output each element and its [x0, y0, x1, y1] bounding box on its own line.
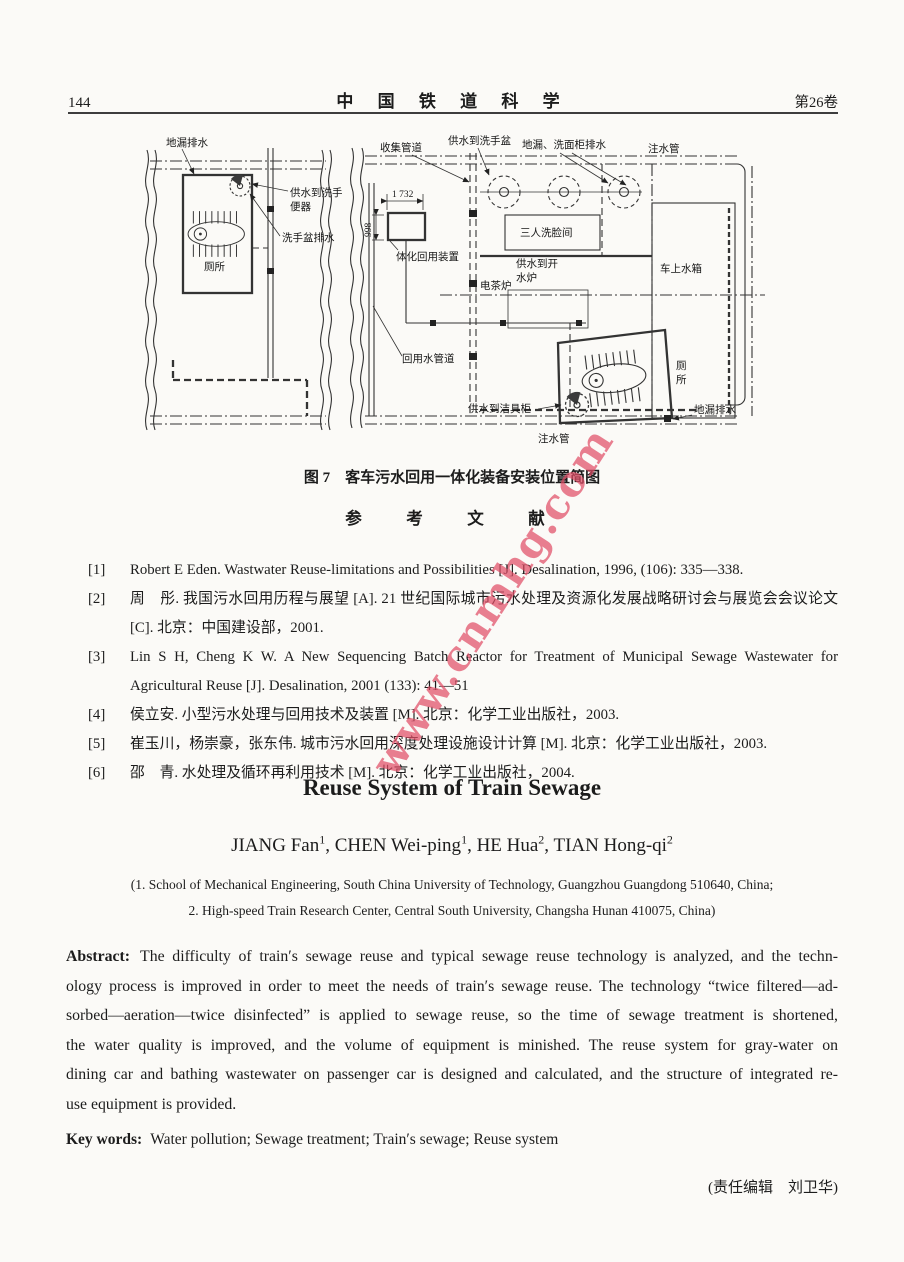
reference-item: [1] Robert E Eden. Wastwater Reuse-limit… [68, 556, 838, 585]
right-labels: 收集管道 供水到洗手盆 地漏、洗面柜排水 注水管 供水到开 水炉 电茶炉 回用水… [373, 134, 736, 445]
label-reuse-pipe: 回用水管道 [402, 352, 455, 365]
reference-text: 侯立安. 小型污水处理与回用技术及装置 [M]. 北京：化学工业出版社，2003… [130, 707, 619, 723]
reference-number: [3] [88, 643, 105, 672]
label-left-supply-2: 便器 [290, 200, 311, 213]
abstract-line: Abstract:The difficulty of train′s sewag… [66, 942, 838, 972]
pipes-right [369, 153, 700, 416]
label-right-floor-drain: 地漏排水 [694, 403, 736, 416]
scanned-paper-page: 144 中 国 铁 道 科 学 第26卷 [0, 0, 904, 1262]
keywords-line: Key words:Water pollution; Sewage treatm… [66, 1131, 838, 1149]
label-left-basin-drain: 洗手盆排水 [282, 231, 335, 244]
author-affiliation-sup: 2 [667, 833, 673, 847]
references-list: [1] Robert E Eden. Wastwater Reuse-limit… [68, 556, 838, 788]
reference-number: [4] [88, 701, 105, 730]
abstract-label: Abstract: [66, 948, 130, 965]
abstract-line: ology process is improved in order to me… [66, 972, 838, 1002]
author: JIANG Fan1, [231, 835, 335, 856]
abstract-line: the water quality is improved, and the v… [66, 1031, 838, 1061]
keywords-label: Key words: [66, 1131, 142, 1148]
affiliation-line: 2. High-speed Train Research Center, Cen… [0, 898, 904, 924]
label-left-floor-drain: 地漏排水 [166, 136, 208, 149]
author: HE Hua2, [477, 835, 554, 856]
label-tea-stove: 电茶炉 [480, 279, 512, 292]
dim-1732: 1 732 [392, 190, 414, 200]
abstract: Abstract:The difficulty of train′s sewag… [66, 942, 838, 1119]
keywords-text: Water pollution; Sewage treatment; Train… [150, 1131, 558, 1148]
editor-note: (责任编辑 刘卫华) [68, 1176, 838, 1197]
journal-title: 中 国 铁 道 科 学 [188, 87, 718, 112]
volume-label: 第26卷 [718, 91, 838, 112]
label-left-toilet: 厕所 [204, 261, 225, 273]
label-right-toilet-1: 厕 [676, 360, 687, 372]
reference-item: [5] 崔玉川，杨崇豪，张东伟. 城市污水回用深度处理设施设计计算 [M]. 北… [68, 730, 838, 759]
label-collection-pipe: 收集管道 [380, 141, 422, 154]
author: CHEN Wei-ping1, [335, 835, 477, 856]
authors-line: JIANG Fan1, CHEN Wei-ping1, HE Hua2, TIA… [0, 833, 904, 857]
page-header: 144 中 国 铁 道 科 学 第26卷 [68, 86, 838, 114]
english-title: Reuse System of Train Sewage [0, 775, 904, 801]
label-drain-cabinet: 地漏、洗面柜排水 [522, 138, 606, 151]
left-labels: 地漏排水 供水到洗手 便器 洗手盆排水 厕所 [166, 136, 343, 273]
label-supply-washbasin: 供水到洗手盆 [448, 134, 511, 147]
reference-number: [1] [88, 556, 105, 585]
water-tank: 车上水箱 [652, 203, 735, 418]
abstract-line: dining car and bathing wastewater on pas… [66, 1060, 838, 1090]
label-supply-boiler-1: 供水到开 [516, 257, 558, 270]
references-heading: 参 考 文 献 [0, 505, 904, 529]
label-supply-boiler-2: 水炉 [516, 272, 537, 284]
figure-7-diagram: 地漏排水 供水到洗手 便器 洗手盆排水 厕所 1 732 [140, 128, 900, 462]
reference-item: [2] 周 彤. 我国污水回用历程与展望 [A]. 21 世纪国际城市污水处理及… [68, 585, 838, 643]
figure-caption: 图 7 客车污水回用一体化装备安装位置简图 [0, 466, 904, 487]
affiliations: (1. School of Mechanical Engineering, So… [0, 872, 904, 924]
abstract-line: use equipment is provided. [66, 1090, 838, 1120]
reference-item: [4] 侯立安. 小型污水处理与回用技术及装置 [M]. 北京：化学工业出版社，… [68, 701, 838, 730]
reference-text: 崔玉川，杨崇豪，张东伟. 城市污水回用深度处理设施设计计算 [M]. 北京：化学… [130, 736, 767, 752]
washing-room-and-basins: 三人洗脸间 [480, 176, 652, 328]
reference-text: Lin S H, Cheng K W. A New Sequencing Bat… [130, 649, 838, 694]
affiliation-line: (1. School of Mechanical Engineering, So… [0, 872, 904, 898]
label-filling-pipe-top: 注水管 [648, 142, 680, 155]
page-number: 144 [68, 95, 188, 112]
author: TIAN Hong-qi2 [553, 835, 672, 856]
label-washing-room: 三人洗脸间 [520, 226, 573, 239]
label-left-supply-1: 供水到洗手 [290, 186, 343, 199]
label-water-tank: 车上水箱 [660, 262, 702, 275]
reference-number: [5] [88, 730, 105, 759]
label-supply-sanitary: 供水到洁具柜 [468, 402, 531, 415]
reference-number: [2] [88, 585, 105, 614]
abstract-line: sorbed—aeration—twice disinfected” is ap… [66, 1001, 838, 1031]
reference-item: [3] Lin S H, Cheng K W. A New Sequencing… [68, 643, 838, 701]
reference-text: Robert E Eden. Wastwater Reuse-limitatio… [130, 562, 743, 578]
label-filling-pipe-bottom: 注水管 [538, 432, 570, 445]
reference-text: 周 彤. 我国污水回用历程与展望 [A]. 21 世纪国际城市污水处理及资源化发… [130, 591, 838, 636]
left-toilet-room [173, 148, 307, 416]
label-right-toilet-2: 所 [676, 374, 687, 386]
